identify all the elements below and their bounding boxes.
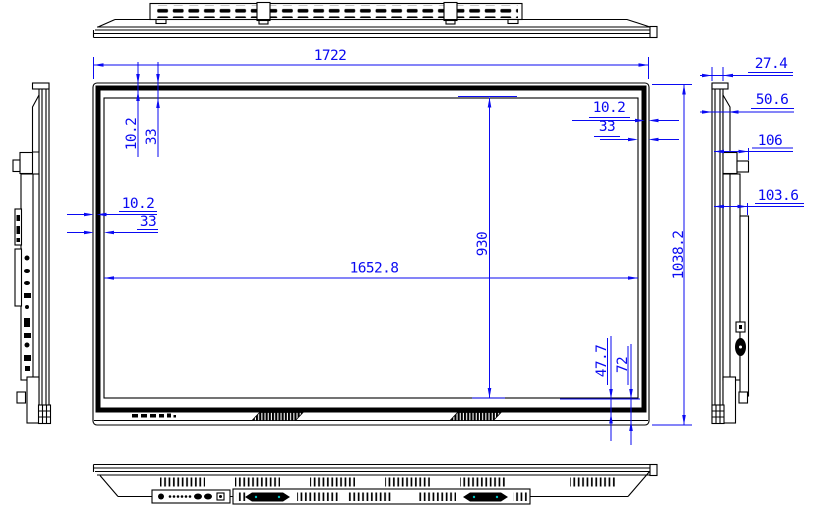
front-view bbox=[93, 83, 649, 425]
dim-label-bezel-inner-tr: 10.2 bbox=[593, 100, 626, 116]
left-side-view bbox=[13, 83, 51, 424]
dim-label-bezel-inner-tl: 10.2 bbox=[124, 118, 140, 151]
drawing-canvas: 1722 1038.2 1652.8 930 10.2 33 10.2 33 bbox=[0, 0, 816, 505]
dim-bezel-left: 10.2 33 bbox=[67, 196, 158, 234]
vga-connector-1 bbox=[245, 493, 290, 502]
dim-chin: 47.7 72 bbox=[560, 336, 640, 445]
dim-label-bezel-outer-left: 33 bbox=[140, 214, 156, 230]
dim-active-width: 1652.8 bbox=[104, 261, 638, 280]
dim-label-overall-width: 1722 bbox=[314, 48, 347, 64]
top-view-back-edge bbox=[115, 20, 650, 28]
front-active-area bbox=[104, 98, 638, 398]
right-view-foot bbox=[739, 392, 748, 403]
bottom-vent-slots bbox=[160, 478, 615, 487]
left-view-upper-wedge bbox=[33, 95, 40, 152]
left-view-back-box bbox=[21, 174, 39, 380]
dim-label-bezel-outer-tl: 33 bbox=[144, 129, 160, 145]
front-bezel-band bbox=[98, 88, 644, 410]
speaker-grille-right bbox=[450, 413, 501, 421]
vga-connector-2 bbox=[463, 493, 508, 502]
left-view-bottom-box bbox=[27, 377, 39, 423]
dim-label-depth-mid: 50.6 bbox=[756, 92, 789, 108]
right-view-upper-wedge bbox=[723, 95, 730, 152]
left-view-bottom-grid bbox=[39, 405, 51, 424]
top-view-left-taper bbox=[98, 20, 115, 28]
bottom-view bbox=[94, 465, 658, 505]
dim-label-bezel-inner-left: 10.2 bbox=[122, 196, 155, 212]
front-outer-frame bbox=[93, 83, 649, 425]
dim-label-bottom-inner: 47.7 bbox=[594, 345, 610, 378]
power-inlet bbox=[735, 338, 746, 356]
power-switch bbox=[736, 322, 745, 332]
dim-label-bottom-outer: 72 bbox=[615, 357, 631, 373]
control-buttons bbox=[132, 414, 176, 418]
wall-mount-stub-left bbox=[13, 153, 33, 174]
dim-label-active-width: 1652.8 bbox=[350, 261, 399, 277]
right-view-top-cap bbox=[712, 83, 728, 89]
dim-bezel-top-left: 10.2 33 bbox=[124, 62, 160, 157]
right-view-panel-slab bbox=[712, 84, 723, 423]
dim-overall-width: 1722 bbox=[94, 48, 649, 79]
right-view-bottom-box bbox=[723, 377, 736, 423]
right-side-view bbox=[712, 83, 749, 424]
bottom-view-front-face bbox=[94, 465, 656, 476]
right-view-bracket bbox=[740, 216, 749, 396]
top-view-right-cap bbox=[650, 27, 657, 38]
io-panel-bottom bbox=[152, 489, 530, 504]
top-view bbox=[94, 3, 658, 38]
drawing-page: 1722 1038.2 1652.8 930 10.2 33 10.2 33 bbox=[0, 0, 816, 505]
dim-label-overall-height: 1038.2 bbox=[671, 231, 687, 280]
dim-bezel-top-right: 10.2 33 bbox=[572, 100, 679, 141]
right-view-bottom-grid bbox=[712, 405, 724, 424]
left-view-panel-slab bbox=[39, 84, 49, 423]
dim-label-active-height: 930 bbox=[475, 232, 491, 256]
vent-grille-top bbox=[150, 3, 522, 25]
left-view-foot bbox=[17, 392, 26, 403]
left-view-top-cap bbox=[33, 83, 50, 89]
bottom-view-right-cap bbox=[650, 465, 657, 476]
left-view-port-block-b bbox=[15, 249, 22, 306]
dim-label-bezel-outer-tr: 33 bbox=[599, 119, 615, 135]
dim-overall-height: 1038.2 bbox=[652, 85, 692, 426]
dim-label-depth-front: 27.4 bbox=[755, 56, 788, 72]
top-view-front-face bbox=[94, 27, 656, 38]
dim-active-height: 930 bbox=[458, 97, 517, 399]
dim-depth-front: 27.4 bbox=[700, 56, 793, 81]
dim-label-depth-bracket: 103.6 bbox=[758, 188, 799, 204]
wall-mount-stub-right bbox=[723, 153, 749, 174]
dim-label-depth-handle: 106 bbox=[758, 133, 782, 149]
speaker-grille-left bbox=[252, 413, 303, 421]
